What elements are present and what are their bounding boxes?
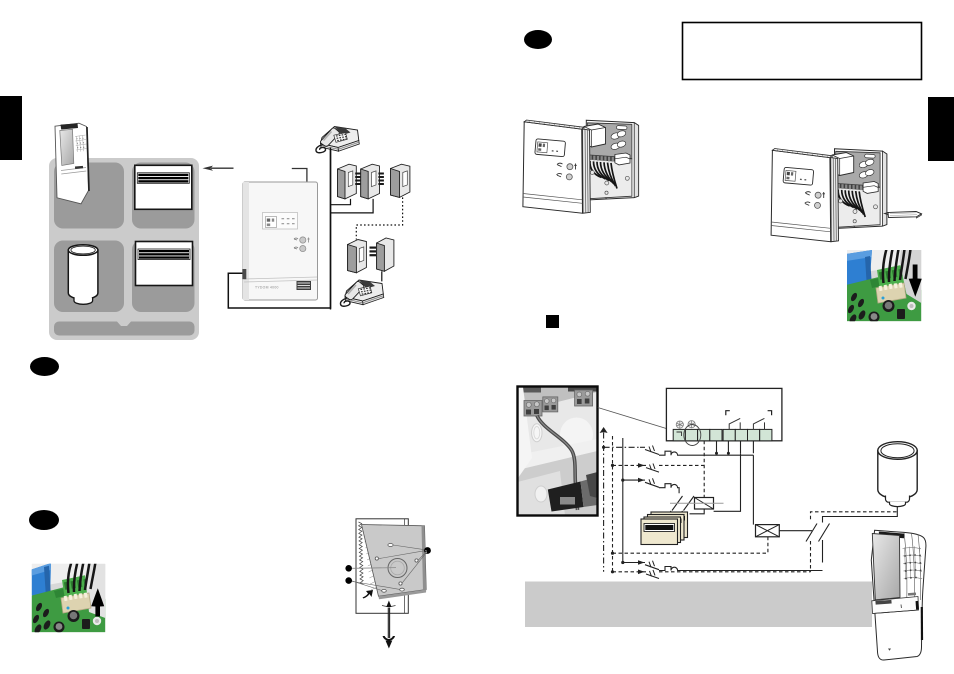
svg-text:TYDOM 4000: TYDOM 4000	[255, 286, 279, 290]
